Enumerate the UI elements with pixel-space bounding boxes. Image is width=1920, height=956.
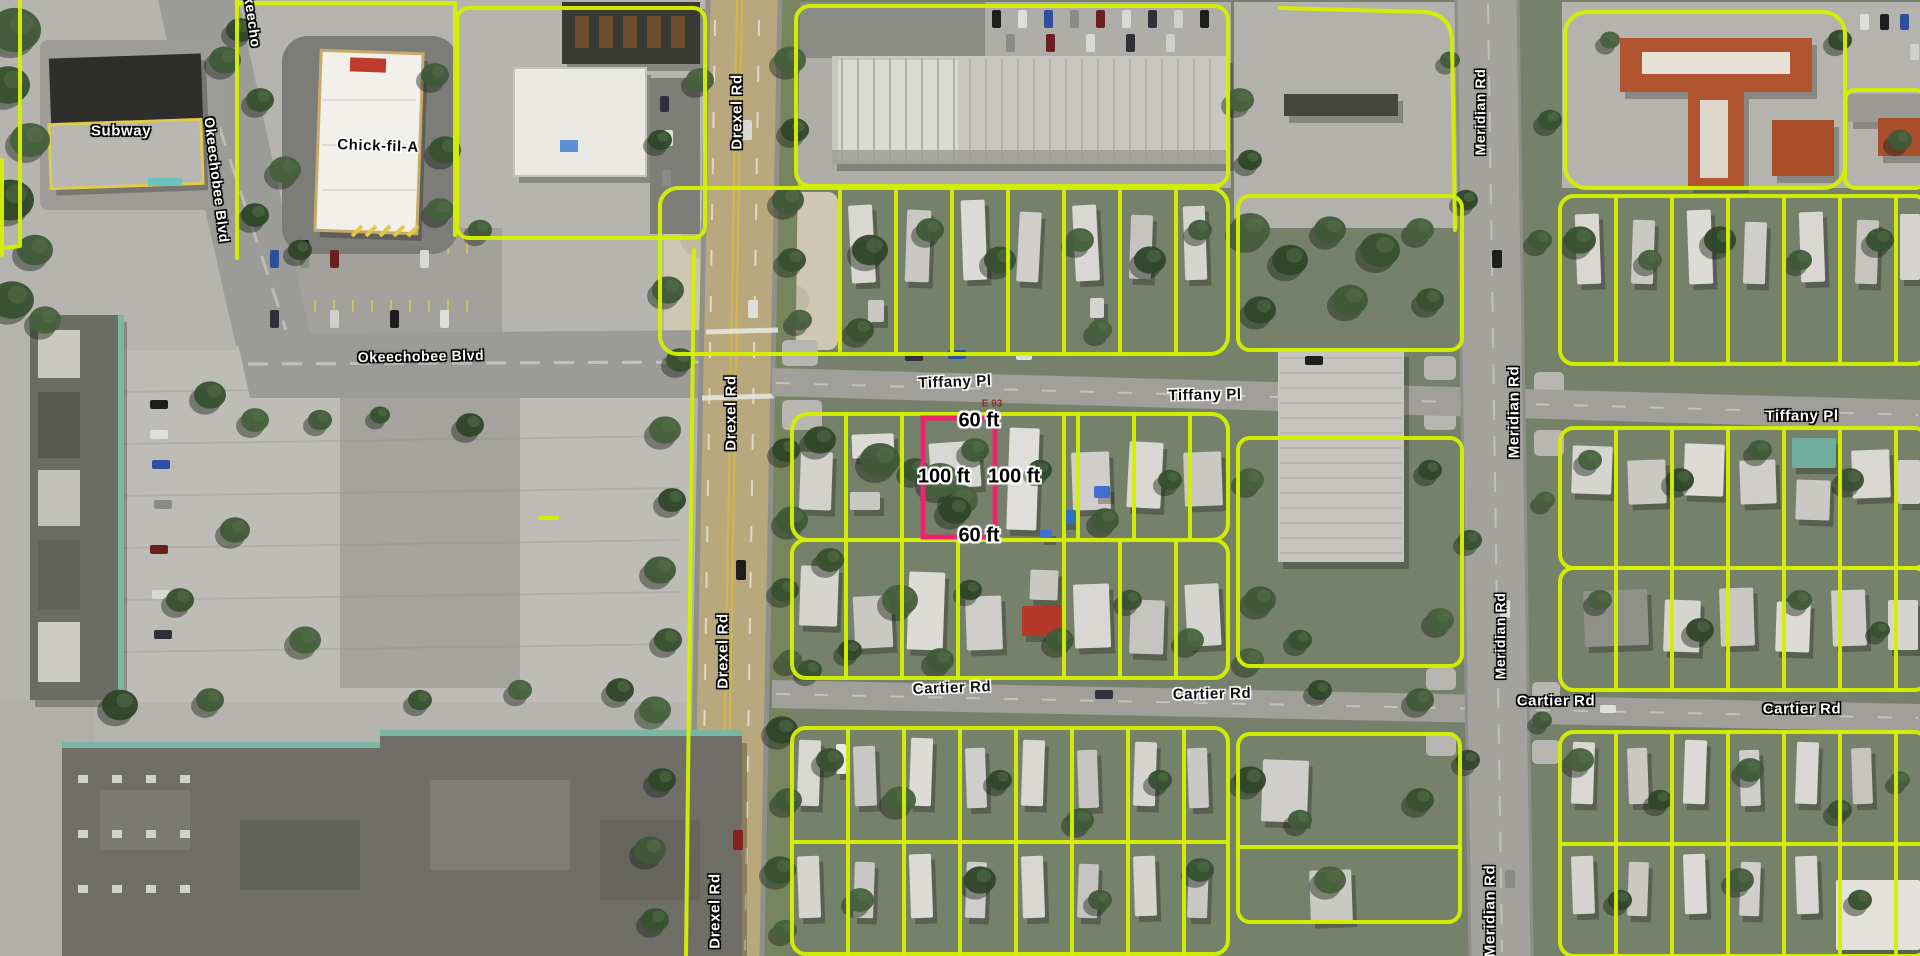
- tree-highlight: [1747, 761, 1760, 772]
- tree-highlight: [1468, 532, 1479, 542]
- tree-highlight: [1798, 592, 1809, 602]
- tree-highlight: [318, 412, 329, 422]
- tree-highlight: [1677, 471, 1690, 482]
- side-parking-strip: [650, 78, 700, 234]
- roof-stripe: [1642, 52, 1790, 74]
- tree-highlight: [972, 441, 985, 452]
- aerial-parcel-map[interactable]: OkeechoOkeechobee BlvdSubwayChick-fil-AO…: [0, 0, 1920, 956]
- rooftop-unit: [112, 775, 122, 783]
- car: [1166, 34, 1175, 52]
- mall-unit: [38, 470, 80, 526]
- tree-highlight: [1618, 892, 1629, 902]
- car: [1018, 10, 1027, 28]
- tree-highlight: [808, 662, 819, 672]
- mobile-home: [797, 856, 821, 919]
- tree-highlight: [1168, 472, 1179, 482]
- mobile-home: [1792, 438, 1836, 468]
- car: [748, 300, 758, 318]
- tree-highlight: [1077, 811, 1090, 822]
- car: [330, 250, 339, 268]
- rooftop-unit: [78, 830, 88, 838]
- mobile-home: [1683, 740, 1707, 805]
- tree-highlight: [1327, 870, 1341, 883]
- tree-highlight: [1158, 772, 1169, 782]
- car: [1900, 14, 1909, 30]
- roof-stripe: [1700, 100, 1728, 178]
- tree-highlight: [857, 321, 870, 332]
- tree-highlight: [1464, 192, 1475, 202]
- car: [1070, 10, 1079, 28]
- tree-highlight: [665, 631, 678, 642]
- mobile-home: [909, 854, 933, 919]
- tree-highlight: [1102, 511, 1115, 522]
- car: [1148, 10, 1157, 28]
- car: [1126, 34, 1135, 52]
- mobile-home: [1836, 880, 1920, 950]
- car: [150, 400, 168, 409]
- tree-highlight: [42, 310, 56, 323]
- tree-highlight: [1346, 288, 1362, 302]
- tree-highlight: [977, 870, 991, 883]
- tree-highlight: [1187, 631, 1200, 642]
- car: [1095, 690, 1113, 699]
- tree-highlight: [1548, 112, 1559, 122]
- car: [992, 10, 1001, 28]
- mobile-home: [1021, 740, 1045, 807]
- car: [1880, 14, 1889, 30]
- car: [736, 560, 746, 580]
- long-dark-building: [1284, 94, 1398, 116]
- tree-highlight: [785, 190, 799, 203]
- car: [662, 170, 671, 186]
- tree-highlight: [817, 430, 831, 443]
- tree-highlight: [876, 447, 894, 463]
- roof-edge: [832, 150, 1228, 164]
- mobile-home: [799, 451, 833, 510]
- rooftop-unit: [112, 885, 122, 893]
- roof-patch: [430, 780, 570, 870]
- car: [1096, 10, 1105, 28]
- mobile-home: [1021, 856, 1045, 919]
- tree-highlight: [1538, 232, 1549, 242]
- mobile-home: [1571, 856, 1595, 915]
- car: [390, 310, 399, 328]
- tree-highlight: [665, 280, 679, 293]
- car: [270, 250, 279, 268]
- retail-building: [514, 68, 646, 176]
- car: [1505, 870, 1515, 888]
- car: [154, 500, 172, 509]
- tree-highlight: [827, 551, 840, 562]
- tree-highlight: [952, 500, 966, 513]
- rooftop-unit: [78, 775, 88, 783]
- car: [1006, 34, 1015, 52]
- tree-highlight: [26, 127, 44, 143]
- tree-highlight: [302, 630, 316, 643]
- mobile-home: [1126, 441, 1163, 509]
- tree-highlight: [662, 420, 676, 433]
- tree-highlight: [478, 222, 489, 232]
- tree-highlight: [1898, 774, 1907, 782]
- gray-building: [1848, 94, 1920, 122]
- rooftop-unit: [146, 885, 156, 893]
- tree-highlight: [866, 238, 882, 252]
- tree-highlight: [1077, 231, 1090, 242]
- tree-highlight: [518, 682, 529, 692]
- tree-highlight: [927, 221, 940, 232]
- tree-highlight: [1847, 471, 1860, 482]
- tree-highlight: [1588, 452, 1599, 462]
- dark-paved-corner: [795, 2, 985, 58]
- tree-highlight: [1577, 751, 1590, 762]
- mall-unit: [38, 392, 80, 458]
- tree-highlight: [1798, 252, 1809, 262]
- mobile-home: [1627, 748, 1649, 805]
- tree-highlight: [617, 681, 630, 692]
- rust-streak: [671, 16, 685, 48]
- car: [150, 430, 168, 439]
- mall-unit: [38, 622, 80, 682]
- tree-highlight: [1247, 770, 1261, 783]
- tree-highlight: [252, 206, 265, 217]
- tree-highlight: [658, 132, 669, 142]
- rooftop-unit: [78, 885, 88, 893]
- car: [742, 120, 752, 140]
- mobile-home: [1187, 748, 1209, 809]
- aerial-imagery: [0, 0, 1920, 956]
- tree-highlight: [652, 700, 666, 713]
- tree-highlight: [827, 751, 840, 762]
- mobile-home: [1627, 459, 1667, 504]
- tree-highlight: [257, 91, 270, 102]
- car: [420, 250, 429, 268]
- car: [1500, 600, 1510, 618]
- mobile-home: [1016, 211, 1042, 282]
- car: [270, 310, 279, 328]
- rust-streak: [647, 16, 661, 48]
- tree-highlight: [437, 201, 450, 212]
- car: [440, 310, 449, 328]
- tree-highlight: [1428, 462, 1439, 472]
- tree-highlight: [848, 642, 859, 652]
- tree-highlight: [1540, 714, 1549, 722]
- tree-highlight: [1658, 792, 1669, 802]
- rooftop-unit: [112, 830, 122, 838]
- tree-highlight: [1198, 222, 1209, 232]
- tree-highlight: [1437, 611, 1450, 622]
- roof-section: [838, 60, 958, 160]
- mobile-home: [1795, 742, 1819, 805]
- mobile-home: [1627, 862, 1649, 917]
- crosswalk: [702, 396, 774, 398]
- rooftop-unit: [180, 775, 190, 783]
- chick-fil-a-red-canopy: [350, 57, 386, 72]
- mobile-home: [1719, 587, 1755, 646]
- rooftop-unit: [146, 830, 156, 838]
- tree-highlight: [1648, 252, 1659, 262]
- tree-highlight: [1298, 812, 1309, 822]
- tree-highlight: [779, 720, 793, 733]
- tree-highlight: [1417, 691, 1430, 702]
- tree-highlight: [1543, 494, 1552, 502]
- mobile-home: [1073, 583, 1111, 648]
- tree-highlight: [936, 467, 954, 483]
- roof-patch: [240, 820, 360, 890]
- car: [152, 460, 170, 469]
- mobile-home: [1077, 750, 1099, 809]
- mobile-home: [965, 748, 987, 809]
- crosswalk: [706, 330, 778, 332]
- sidewalk-corner: [1426, 668, 1456, 690]
- tree-highlight: [237, 21, 250, 32]
- car: [1910, 44, 1919, 60]
- car: [660, 96, 669, 112]
- tree-highlight: [1417, 221, 1430, 232]
- tree-highlight: [282, 160, 296, 173]
- tree-highlight: [1878, 624, 1887, 632]
- tree-highlight: [1298, 632, 1309, 642]
- tree-highlight: [418, 692, 429, 702]
- tree-highlight: [116, 693, 132, 707]
- tree-highlight: [1737, 871, 1750, 882]
- tree-highlight: [777, 860, 791, 873]
- tree-highlight: [1376, 237, 1394, 253]
- tree-highlight: [1697, 621, 1710, 632]
- orange-hip-roof-building: [1772, 120, 1834, 176]
- teal-trim: [62, 742, 380, 748]
- car: [1044, 10, 1053, 28]
- chick-fil-a-building: [315, 50, 423, 233]
- car: [1492, 250, 1502, 268]
- car: [150, 545, 168, 554]
- tree-highlight: [1598, 592, 1609, 602]
- tree-highlight: [1257, 590, 1271, 603]
- tree-highlight: [1038, 462, 1049, 472]
- tree-highlight: [998, 772, 1009, 782]
- sidewalk-corner: [1532, 740, 1560, 764]
- tree-highlight: [222, 50, 236, 63]
- tree-highlight: [1246, 217, 1264, 233]
- tree-highlight: [937, 651, 950, 662]
- west-warehouse-building: [1278, 350, 1404, 562]
- mobile-home: [868, 300, 884, 322]
- tree-highlight: [5, 184, 27, 203]
- rooftop-unit: [180, 830, 190, 838]
- mobile-home: [1040, 530, 1052, 539]
- tree-highlight: [1248, 152, 1259, 162]
- tree-highlight: [1237, 91, 1250, 102]
- tree-highlight: [1466, 752, 1477, 762]
- teal-trim: [118, 315, 124, 700]
- tree-highlight: [1247, 471, 1260, 482]
- tree-highlight: [177, 591, 190, 602]
- tree-highlight: [669, 491, 682, 502]
- tree-highlight: [1197, 861, 1210, 872]
- tree-highlight: [1417, 791, 1430, 802]
- tree-highlight: [1427, 291, 1440, 302]
- tree-highlight: [652, 911, 665, 922]
- tree-highlight: [657, 560, 671, 573]
- tree-highlight: [378, 409, 387, 417]
- tree-highlight: [857, 891, 870, 902]
- tree-highlight: [896, 588, 912, 602]
- car: [154, 630, 172, 639]
- tree-highlight: [207, 385, 221, 398]
- tree-highlight: [432, 66, 445, 77]
- car: [733, 830, 743, 850]
- tree-highlight: [1608, 34, 1617, 42]
- car: [1860, 14, 1869, 30]
- mobile-home: [1743, 222, 1767, 285]
- mobile-home: [1851, 748, 1873, 805]
- tree-highlight: [1318, 682, 1329, 692]
- mobile-home: [853, 746, 877, 807]
- tree-highlight: [1577, 230, 1591, 243]
- car: [1174, 10, 1183, 28]
- okeechobee-road: [236, 330, 710, 398]
- mobile-home: [850, 492, 880, 510]
- tree-highlight: [1758, 442, 1769, 452]
- car: [1122, 10, 1131, 28]
- tree-highlight: [798, 312, 809, 322]
- tree-highlight: [659, 771, 672, 782]
- tree-highlight: [1877, 231, 1890, 242]
- roof-patch: [100, 790, 190, 850]
- tree-highlight: [8, 286, 28, 304]
- tree-highlight: [1098, 892, 1109, 902]
- mobile-home: [1900, 214, 1920, 280]
- car: [1046, 34, 1055, 52]
- tree-highlight: [31, 238, 47, 252]
- rooftop-unit: [146, 775, 156, 783]
- sidewalk-corner: [1424, 356, 1456, 380]
- rust-streak: [599, 16, 613, 48]
- mobile-home: [1094, 486, 1110, 498]
- tree-highlight: [789, 251, 802, 262]
- tree-highlight: [1898, 132, 1909, 142]
- mobile-home: [1898, 460, 1920, 504]
- car: [1086, 34, 1095, 52]
- tree-highlight: [252, 411, 265, 422]
- tree-highlight: [1128, 592, 1139, 602]
- tree-highlight: [1327, 220, 1341, 233]
- tree-highlight: [968, 582, 979, 592]
- tree-highlight: [207, 691, 220, 702]
- tree-highlight: [298, 242, 309, 252]
- mobile-home: [1133, 856, 1157, 917]
- car: [1305, 356, 1323, 365]
- tree-highlight: [1098, 322, 1109, 332]
- mobile-home: [1795, 479, 1830, 520]
- mobile-home: [1795, 856, 1819, 915]
- tree-highlight: [1257, 300, 1271, 313]
- rooftop-unit: [180, 885, 190, 893]
- mobile-home: [1090, 298, 1104, 318]
- tree-highlight: [467, 416, 480, 427]
- mobile-home: [1739, 459, 1777, 504]
- rust-streak: [575, 16, 589, 48]
- subway-roof-dark: [49, 53, 203, 126]
- tree-highlight: [232, 520, 246, 532]
- subway-awning: [148, 178, 182, 186]
- mobile-home: [1888, 600, 1918, 650]
- tree-highlight: [1247, 651, 1260, 662]
- mobile-home: [1029, 570, 1058, 601]
- mobile-home: [1831, 589, 1867, 646]
- tree-highlight: [647, 840, 661, 853]
- blue-tarp: [560, 140, 578, 152]
- car: [1600, 705, 1616, 713]
- mall-unit: [38, 540, 80, 610]
- mobile-home: [1683, 854, 1707, 915]
- tree-highlight: [1286, 248, 1302, 262]
- car: [1200, 10, 1209, 28]
- car: [330, 310, 339, 328]
- tree-highlight: [1858, 892, 1869, 902]
- rust-streak: [623, 16, 637, 48]
- tree-highlight: [1147, 250, 1161, 263]
